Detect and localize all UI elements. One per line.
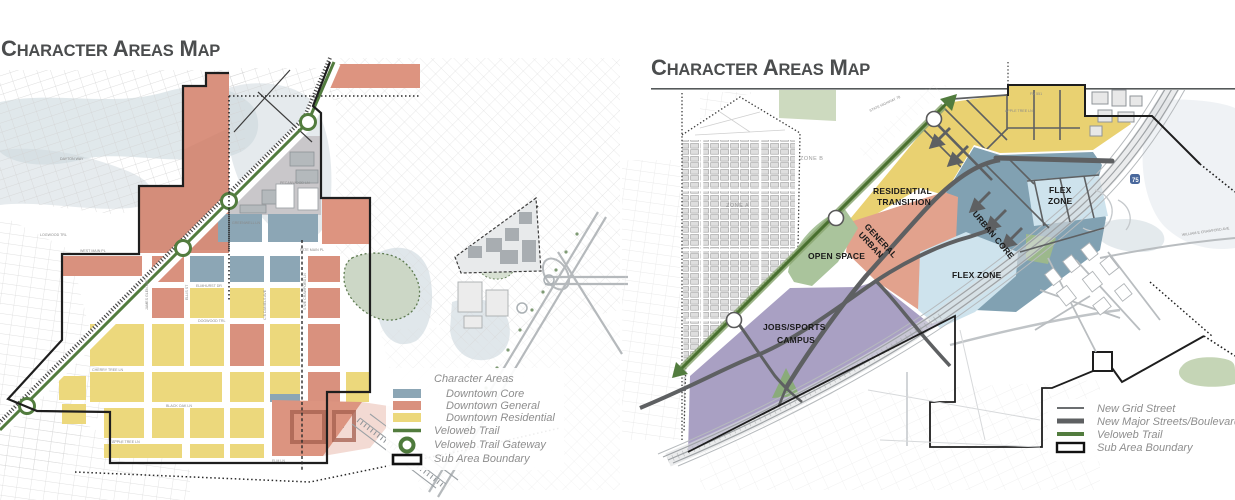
svg-text:Veloweb Trail Gateway: Veloweb Trail Gateway <box>434 439 547 451</box>
svg-text:ZONE: ZONE <box>1048 196 1073 206</box>
svg-text:GREENWELL LN: GREENWELL LN <box>232 221 260 225</box>
svg-text:RESIDENTIAL: RESIDENTIAL <box>873 186 932 196</box>
svg-text:New Grid Street: New Grid Street <box>1097 403 1176 415</box>
svg-text:JAMES GLEN AVE: JAMES GLEN AVE <box>145 279 149 310</box>
svg-text:Character Areas: Character Areas <box>434 373 514 385</box>
svg-text:Sub Area Boundary: Sub Area Boundary <box>1097 442 1194 454</box>
svg-text:New Major Streets/Boulevards: New Major Streets/Boulevards <box>1097 416 1235 428</box>
svg-text:OPEN SPACE: OPEN SPACE <box>808 251 865 261</box>
svg-text:Downtown General: Downtown General <box>446 400 540 412</box>
svg-text:FLEX ZONE: FLEX ZONE <box>952 270 1002 280</box>
svg-text:Sub Area Boundary: Sub Area Boundary <box>434 453 531 465</box>
svg-text:S WE CRAWFORD LN: S WE CRAWFORD LN <box>303 273 307 310</box>
svg-text:CHERRY TREE LN: CHERRY TREE LN <box>92 368 124 372</box>
svg-text:DOGWOOD TRL: DOGWOOD TRL <box>198 319 226 323</box>
svg-text:ZONE A: ZONE A <box>726 203 749 209</box>
svg-text:FATE MAIN PL: FATE MAIN PL <box>300 248 324 252</box>
svg-text:ELM LN: ELM LN <box>272 459 285 463</box>
svg-text:Veloweb Trail: Veloweb Trail <box>434 425 500 437</box>
svg-text:FM 551: FM 551 <box>1030 92 1042 96</box>
svg-text:75: 75 <box>1132 178 1139 184</box>
svg-text:PECANWOOD LN: PECANWOOD LN <box>280 181 310 185</box>
svg-text:DAYTON WAY: DAYTON WAY <box>60 157 84 161</box>
svg-text:WEST MAIN PL: WEST MAIN PL <box>80 249 106 253</box>
svg-text:APPLE TREE LN: APPLE TREE LN <box>112 440 140 444</box>
svg-text:JOBS/SPORTS: JOBS/SPORTS <box>763 322 826 332</box>
svg-text:Downtown Core: Downtown Core <box>446 388 524 400</box>
svg-text:ELLIS ST: ELLIS ST <box>185 284 189 300</box>
svg-text:BLACK OAK LN: BLACK OAK LN <box>166 404 192 408</box>
svg-text:APPLE TREE LN: APPLE TREE LN <box>1005 109 1033 113</box>
svg-text:Veloweb Trail: Veloweb Trail <box>1097 429 1163 441</box>
svg-text:ZONE B: ZONE B <box>800 156 823 162</box>
svg-text:CAMPUS: CAMPUS <box>777 335 815 345</box>
svg-text:Downtown Residential: Downtown Residential <box>446 412 555 424</box>
svg-text:TRANSITION: TRANSITION <box>877 197 931 207</box>
svg-text:LOGWOOD TRL: LOGWOOD TRL <box>40 233 67 237</box>
svg-text:C B DANIELS AVE: C B DANIELS AVE <box>263 289 267 320</box>
svg-text:ELMHURST DR: ELMHURST DR <box>196 284 222 288</box>
svg-text:FLEX: FLEX <box>1049 185 1072 195</box>
